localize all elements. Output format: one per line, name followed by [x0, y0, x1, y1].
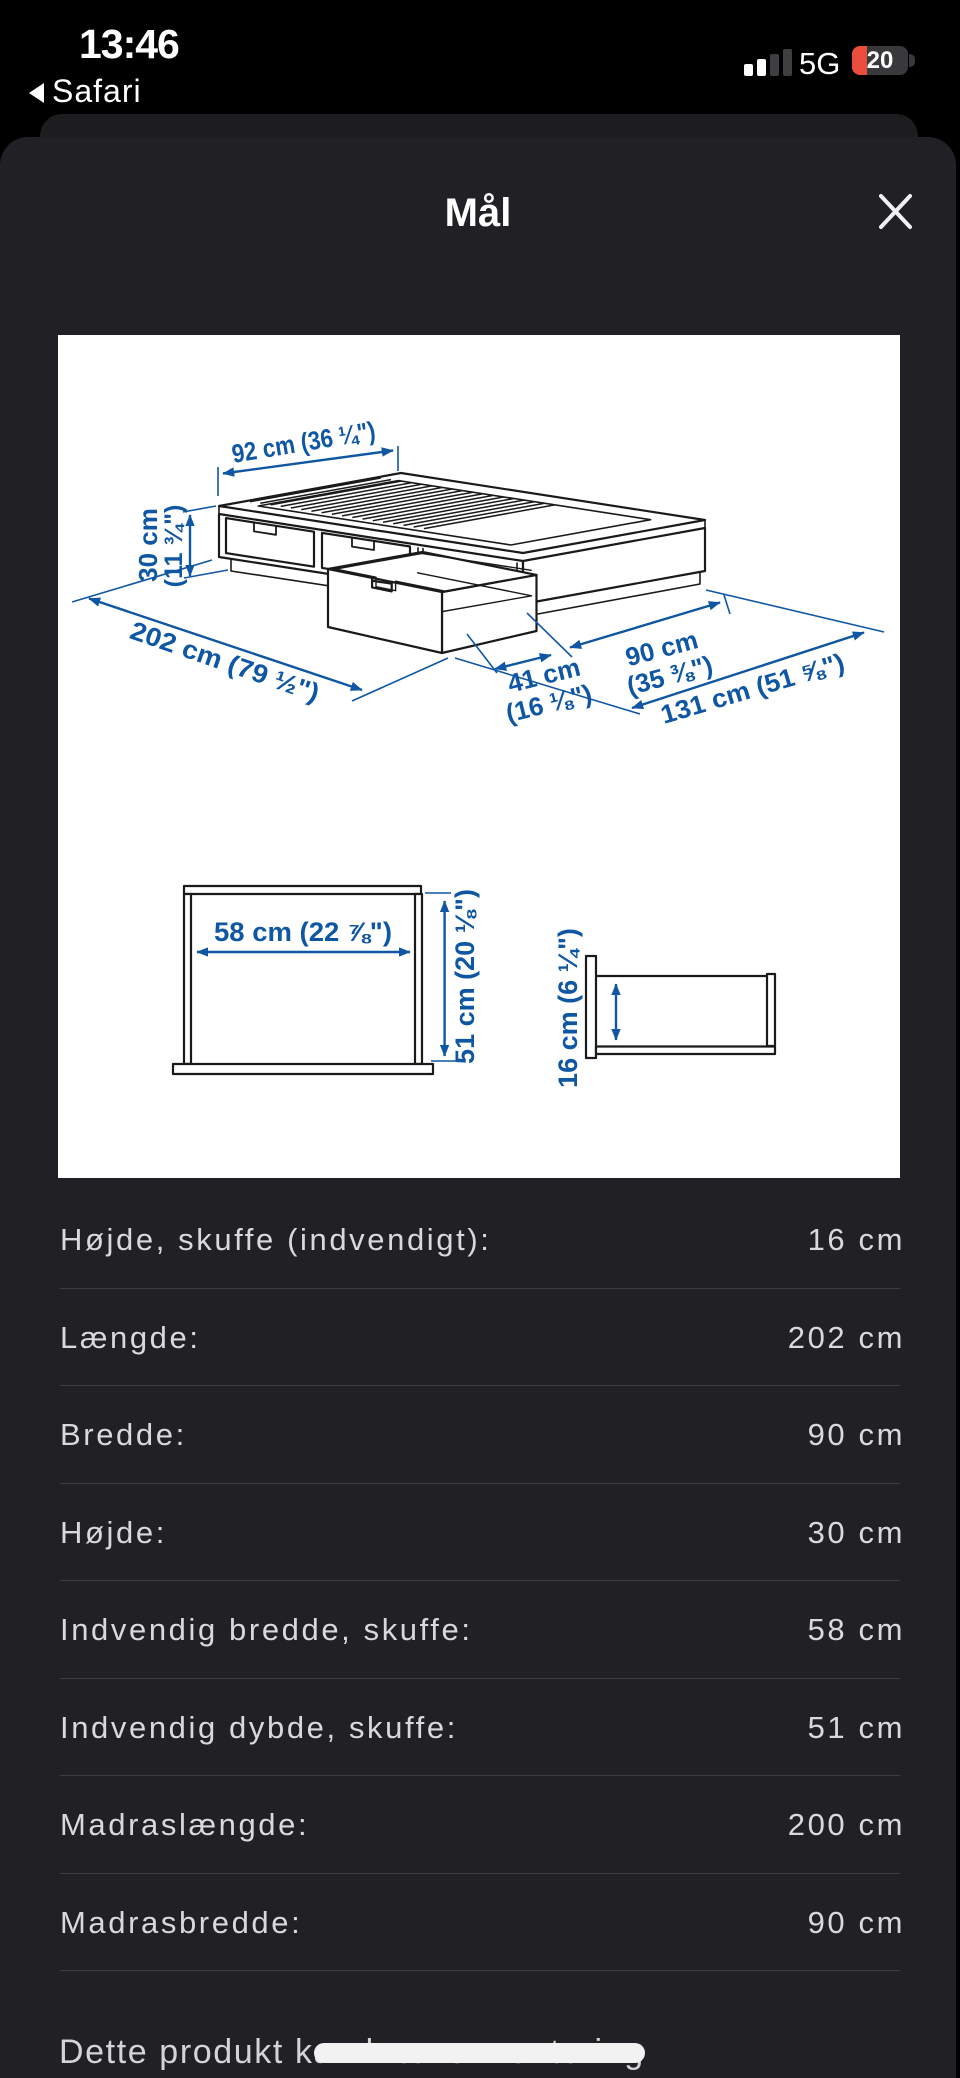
svg-text:16 cm (6 ¼"): 16 cm (6 ¼") — [553, 928, 583, 1088]
svg-text:(11 ¾"): (11 ¾") — [160, 505, 188, 588]
svg-text:92 cm (36 ¼"): 92 cm (36 ¼") — [230, 415, 378, 469]
svg-text:58 cm (22 ⅞"): 58 cm (22 ⅞") — [214, 917, 392, 947]
svg-text:51 cm (20 ⅛"): 51 cm (20 ⅛") — [450, 889, 480, 1064]
svg-text:202 cm (79 ½"): 202 cm (79 ½") — [126, 615, 323, 708]
svg-text:30 cm: 30 cm — [133, 508, 163, 582]
